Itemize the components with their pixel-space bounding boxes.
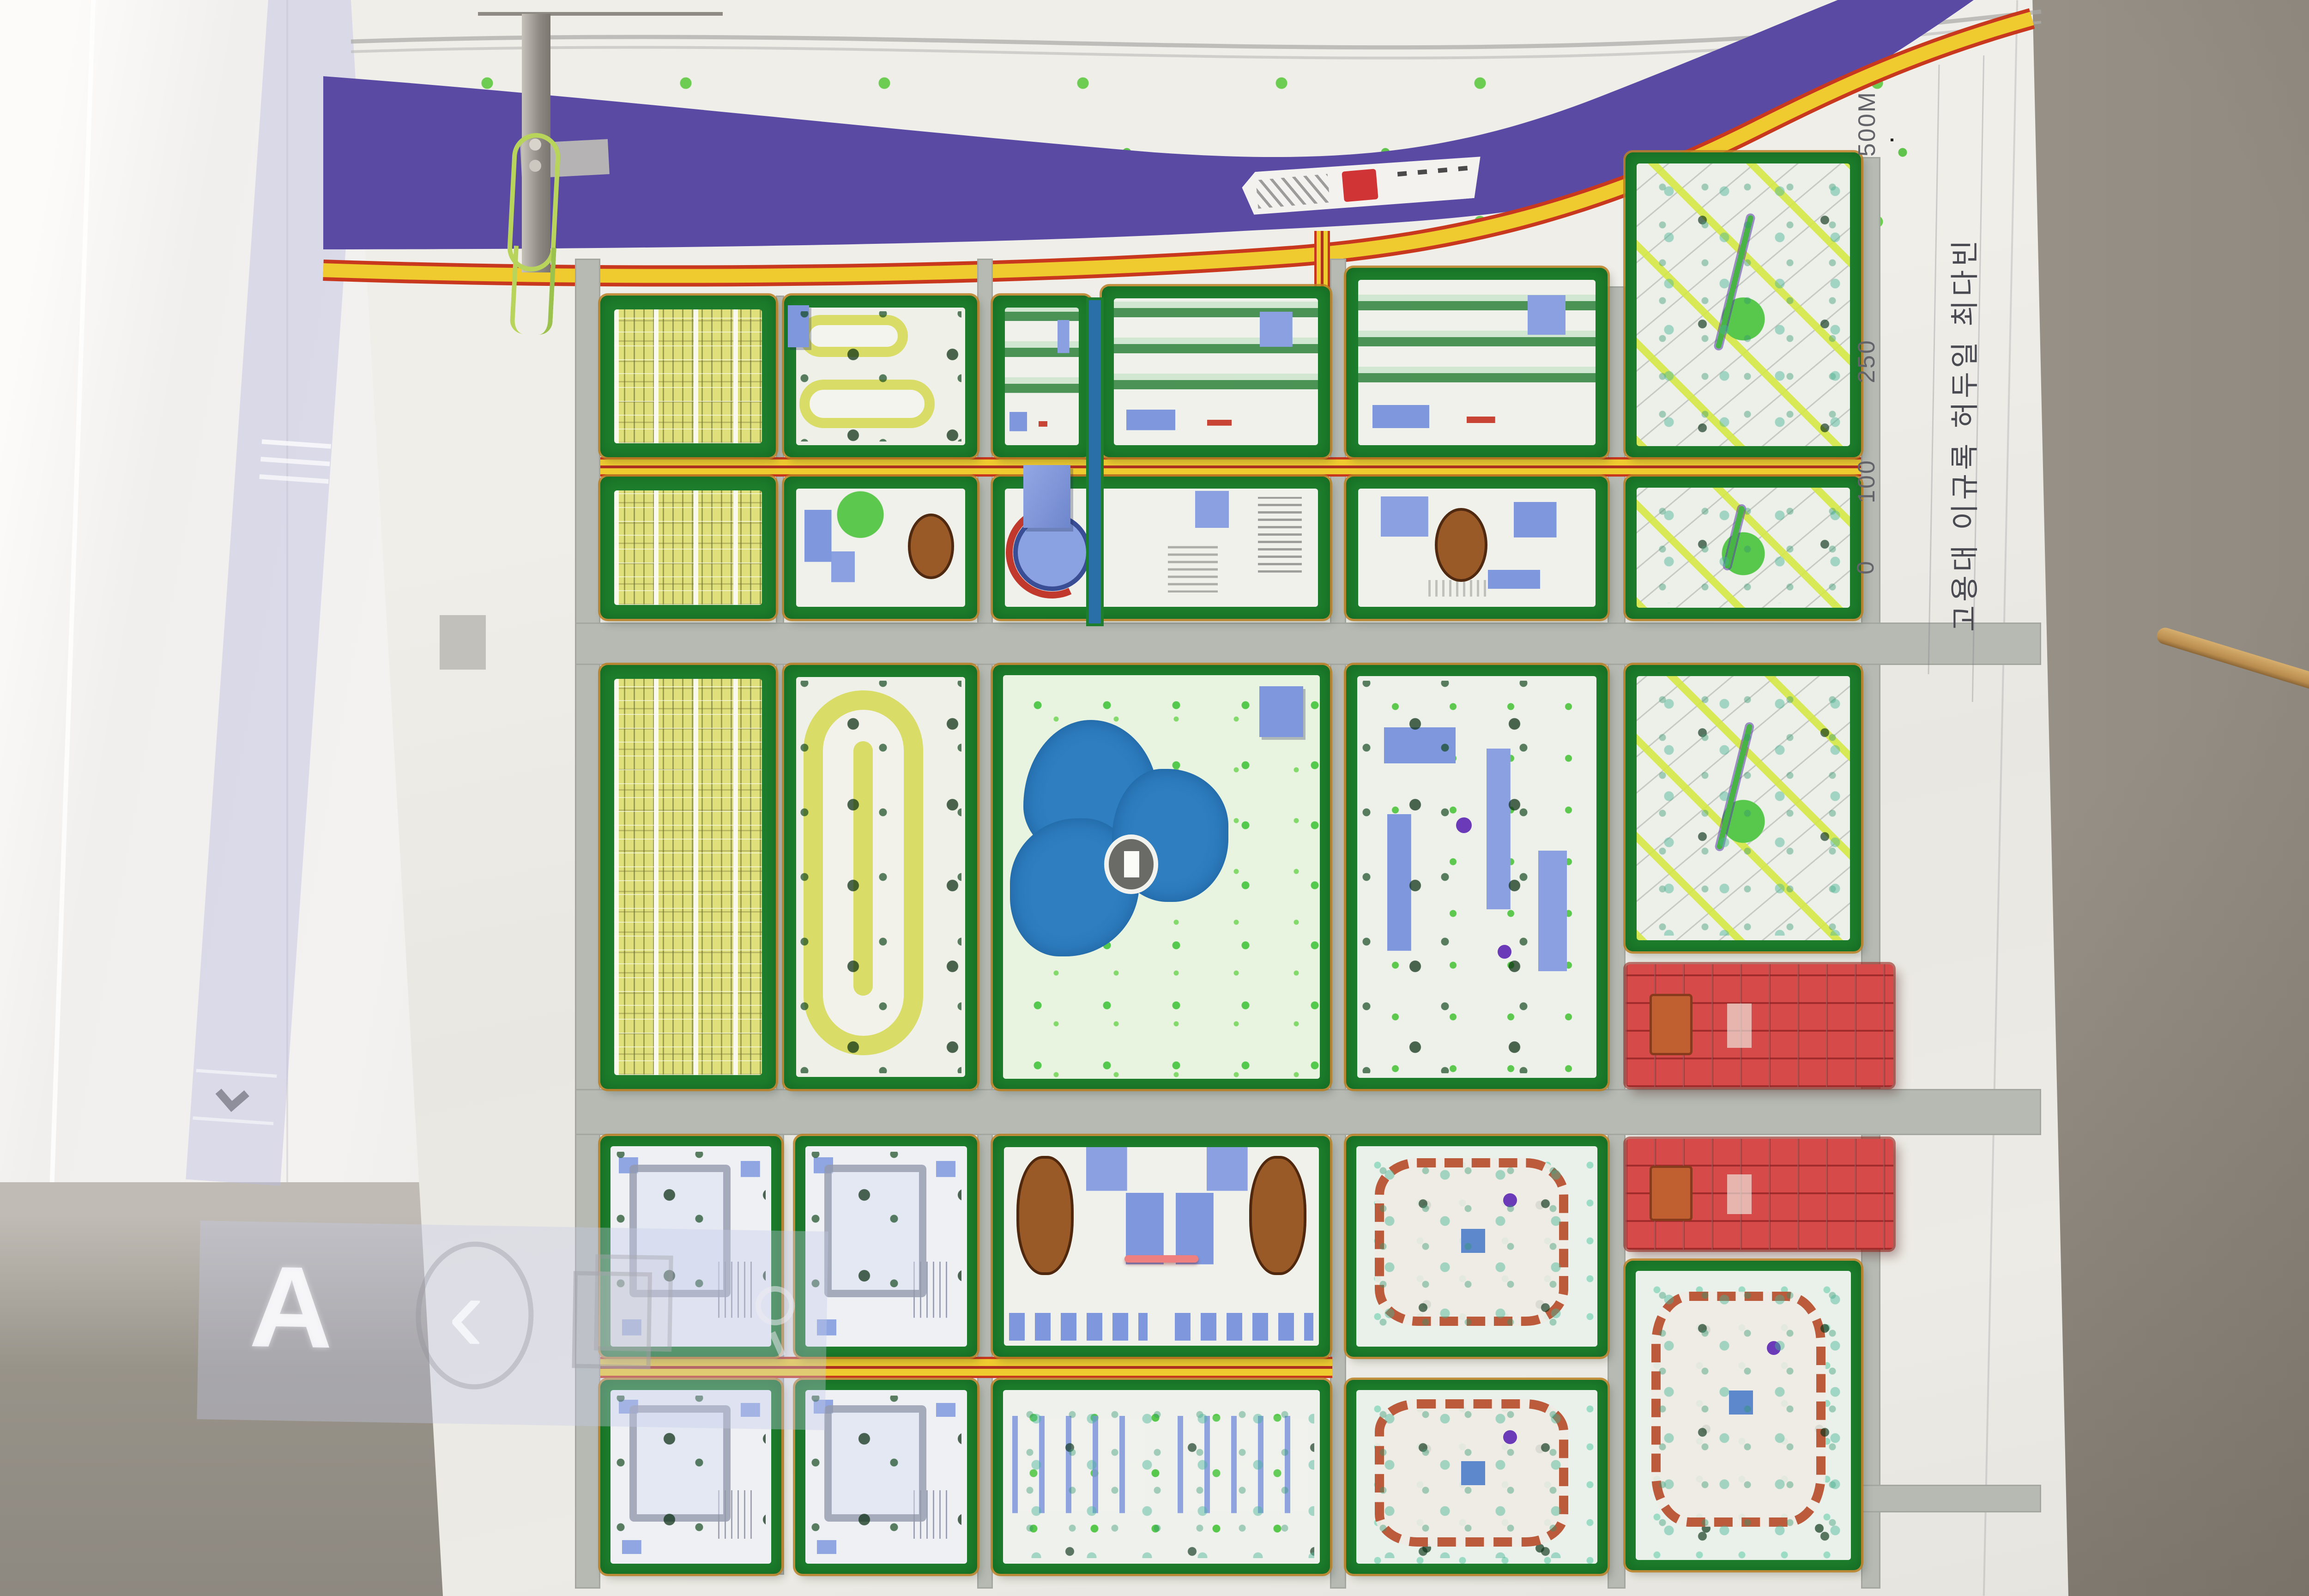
scale-label-0: 0: [1852, 560, 1880, 574]
scale-label-500m: 500M: [1853, 91, 1881, 157]
easel-top-rail: [478, 12, 723, 16]
scale-label-100: 100: [1853, 459, 1880, 503]
author-names: 고용대 이규록 허두일 최다빈: [1941, 170, 1983, 632]
stage: 500M 250 100 0 고용대 이규록 허두일 최다빈 A ‹: [0, 0, 2309, 1596]
easel-bolt: [529, 139, 541, 151]
scale-bar-column: [1891, 139, 1892, 141]
scale-bar: [1891, 139, 1917, 573]
legend: 500M 250 100 0 고용대 이규록 허두일 최다빈: [0, 0, 2309, 1596]
elastic-cord: [506, 132, 562, 272]
legend-sheet-edge: [1928, 65, 1940, 674]
scale-label-250: 250: [1853, 339, 1880, 383]
tape-strip: [440, 615, 486, 670]
